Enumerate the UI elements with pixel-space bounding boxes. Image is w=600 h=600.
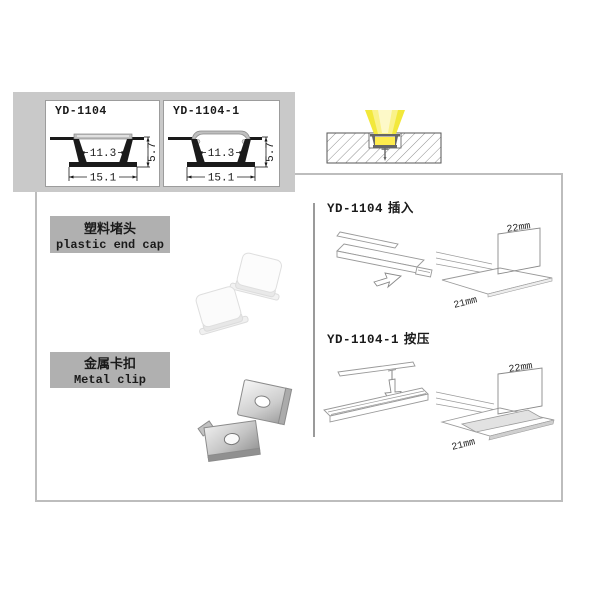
plastic-end-cap-label: 塑料堵头 plastic end cap [50,216,170,253]
metal-clips-image [192,376,302,466]
cross-section-diagram-yd1104-1: 11.3 15.1 5.7 [165,121,277,185]
dim-plane [498,368,542,414]
profile-spec-panel: YD-1104 11.3 [13,92,295,192]
led-glow [375,137,395,145]
mount-title-yd1104-1: YD-1104-1 按压 [327,328,430,347]
dim-inner-width: 11.3 [208,148,234,160]
dim-22mm: 22mm [506,221,531,236]
mount-method: 插入 [388,200,414,215]
profile-drawing-yd1104-1: YD-1104-1 11.3 [163,100,280,187]
mount-method: 按压 [404,331,430,346]
mount2-dimension-diagram: 22mm 21mm [436,352,564,452]
plastic-end-cap-label-en: plastic end cap [50,238,170,252]
column-divider [313,203,315,437]
dim-21mm: 21mm [453,295,479,311]
mount1-dimension-diagram: 22mm 21mm [436,218,564,313]
metal-clip-label-en: Metal clip [50,373,170,387]
dim-height: 5.7 [147,142,159,162]
plastic-end-caps-image [186,246,294,341]
plastic-end-cap-label-cn: 塑料堵头 [50,218,170,237]
mount-model: YD-1104-1 [327,333,399,347]
product-spec-sheet: YD-1104 11.3 [0,0,600,600]
dim-21mm: 21mm [451,437,477,452]
dim-height: 5.7 [265,142,277,162]
profile-model-label: YD-1104 [55,105,107,118]
metal-clip-label-cn: 金属卡扣 [50,353,170,372]
mount1-insert-diagram [330,220,450,292]
dim-22mm: 22mm [508,361,533,376]
dim-inner-width: 11.3 [90,148,116,160]
dim-outer-width: 15.1 [90,173,117,185]
cross-section-diagram-yd1104: 11.3 15.1 5.7 [47,121,159,185]
dim-outer-width: 15.1 [208,173,235,185]
metal-clip-label: 金属卡扣 Metal clip [50,352,170,388]
dim-plane [498,228,540,274]
mount-model: YD-1104 [327,202,383,216]
mount-title-yd1104: YD-1104 插入 [327,197,414,216]
profile-drawing-yd1104: YD-1104 11.3 [45,100,160,187]
recessed-installation-illustration [325,104,445,166]
mount2-press-diagram [318,350,440,432]
insert-arrow-icon [374,273,401,287]
profile-model-label: YD-1104-1 [173,105,240,118]
